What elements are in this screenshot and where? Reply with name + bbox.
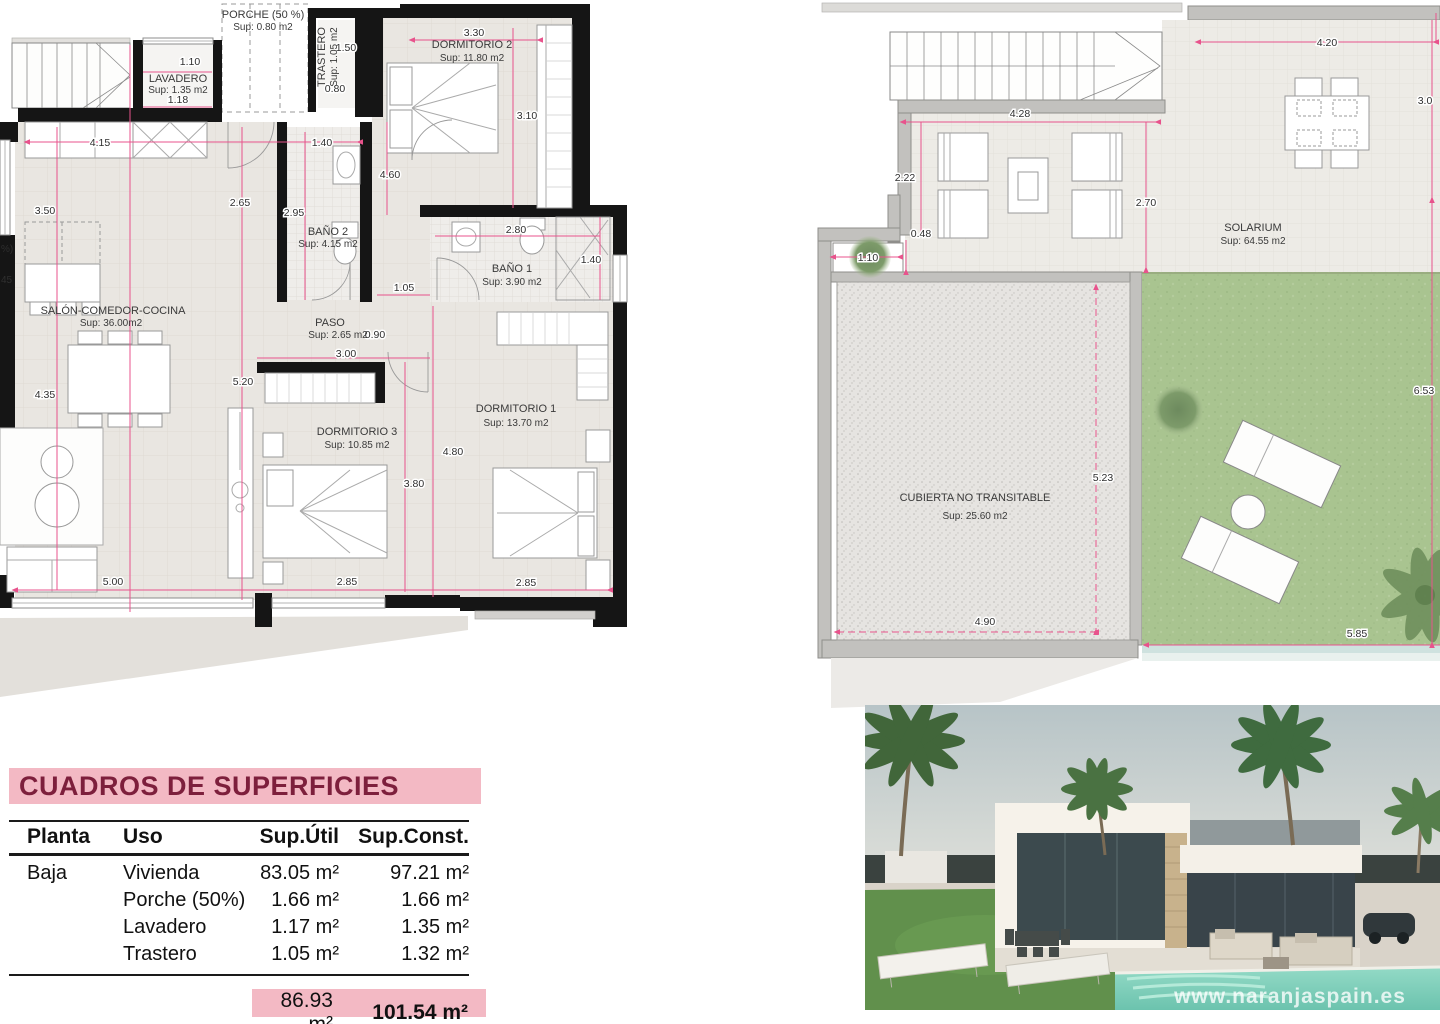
- col-header-util: Sup.Útil: [255, 822, 339, 853]
- svg-text:Sup: 4.15 m2: Sup: 4.15 m2: [298, 239, 358, 250]
- floor-plans: 1.10 1.18 1.50 0.80 3.30 3.10 4.15 1.40 …: [0, 0, 1440, 712]
- svg-text:0.48: 0.48: [911, 228, 932, 240]
- cell-planta: [27, 914, 123, 941]
- svg-text:Sup: 64.55 m2: Sup: 64.55 m2: [1220, 236, 1285, 247]
- terrace-edge: [0, 616, 468, 697]
- total-util: 86.93 m²: [252, 989, 339, 1024]
- svg-text:5.20: 5.20: [233, 376, 254, 388]
- svg-text:1.40: 1.40: [312, 137, 333, 149]
- roof-wedge: [831, 658, 1138, 708]
- staircase: [12, 38, 130, 108]
- svg-text:SOLARIUM: SOLARIUM: [1224, 222, 1281, 234]
- ground-floor-plan: 1.10 1.18 1.50 0.80 3.30 3.10 4.15 1.40 …: [0, 4, 627, 697]
- svg-text:45: 45: [1, 275, 13, 286]
- svg-text:3.10: 3.10: [517, 110, 538, 122]
- pool-edge: [1142, 645, 1440, 653]
- bed-dormitorio2: [387, 63, 498, 153]
- svg-text:PORCHE (50 %): PORCHE (50 %): [222, 9, 305, 21]
- svg-text:2.65: 2.65: [230, 197, 251, 209]
- cell-const: 97.21 m²: [339, 860, 469, 887]
- surface-table-totals: 86.93 m² 101.54 m²: [252, 989, 486, 1017]
- svg-text:TRASTERO: TRASTERO: [316, 27, 328, 87]
- solarium-plan: 4.20 4.28 2.22 0.48 1.10 2.70 3.0 5.23 4…: [818, 3, 1440, 708]
- svg-text:4.80: 4.80: [443, 446, 464, 458]
- svg-text:DORMITORIO 1: DORMITORIO 1: [476, 403, 556, 415]
- svg-text:2.95: 2.95: [284, 207, 305, 219]
- svg-text:Sup: 10.85 m2: Sup: 10.85 m2: [324, 440, 389, 451]
- svg-text:Sup: 13.70 m2: Sup: 13.70 m2: [483, 418, 548, 429]
- wardrobe-dormitorio2: [537, 25, 572, 208]
- watermark: www.naranjaspain.es: [1173, 985, 1406, 1008]
- cell-util: 1.17 m²: [255, 914, 339, 941]
- svg-text:6.53: 6.53: [1414, 385, 1435, 397]
- pool-edge-light: [1142, 653, 1440, 661]
- cell-uso: Porche (50%): [123, 887, 255, 914]
- svg-text:Sup: 11.80 m2: Sup: 11.80 m2: [440, 53, 505, 64]
- svg-text:Sup: 3.90 m2: Sup: 3.90 m2: [482, 277, 542, 288]
- svg-text:Sup: 0.80 m2: Sup: 0.80 m2: [233, 22, 293, 33]
- svg-text:1.10: 1.10: [858, 252, 879, 264]
- svg-text:5.23: 5.23: [1093, 472, 1114, 484]
- svg-text:3.50: 3.50: [35, 205, 56, 217]
- col-header-uso: Uso: [123, 822, 255, 853]
- svg-text:1.05: 1.05: [394, 282, 415, 294]
- svg-text:2.70: 2.70: [1136, 197, 1157, 209]
- svg-text:BAÑO 2: BAÑO 2: [308, 225, 348, 238]
- cell-planta: [27, 887, 123, 914]
- surface-table-rows: Baja Vivienda 83.05 m² 97.21 m² Porche (…: [9, 856, 469, 976]
- svg-text:4.20: 4.20: [1317, 37, 1338, 49]
- svg-text:4.60: 4.60: [380, 169, 401, 181]
- svg-text:3.0: 3.0: [1418, 95, 1433, 107]
- cell-planta: Baja: [27, 860, 123, 887]
- svg-text:5.00: 5.00: [103, 576, 124, 588]
- svg-text:4.90: 4.90: [975, 616, 996, 628]
- svg-text:DORMITORIO 3: DORMITORIO 3: [317, 426, 397, 438]
- svg-text:SALÓN-COMEDOR-COCINA: SALÓN-COMEDOR-COCINA: [41, 304, 187, 317]
- side-table: [1231, 495, 1265, 529]
- svg-text:3.00: 3.00: [336, 348, 357, 360]
- svg-text:4.28: 4.28: [1010, 108, 1031, 120]
- cell-planta: [27, 941, 123, 968]
- svg-text:DORMITORIO 2: DORMITORIO 2: [432, 39, 512, 51]
- cell-util: 83.05 m²: [255, 860, 339, 887]
- svg-text:Sup: 36.00m2: Sup: 36.00m2: [80, 318, 143, 329]
- surface-table-title: CUADROS DE SUPERFICIES: [19, 771, 399, 802]
- svg-text:0.90: 0.90: [365, 329, 386, 341]
- svg-text:PASO: PASO: [315, 317, 345, 329]
- cell-uso: Vivienda: [123, 860, 255, 887]
- cell-const: 1.66 m²: [339, 887, 469, 914]
- svg-text:1.40: 1.40: [581, 254, 602, 266]
- grass-area: [1142, 272, 1440, 645]
- surface-table-title-bar: CUADROS DE SUPERFICIES: [9, 768, 481, 804]
- cell-util: 1.05 m²: [255, 941, 339, 968]
- surface-table: CUADROS DE SUPERFICIES Planta Uso Sup.Út…: [9, 768, 481, 1017]
- svg-text:2.85: 2.85: [337, 576, 358, 588]
- svg-text:4.15: 4.15: [90, 137, 111, 149]
- cell-util: 1.66 m²: [255, 887, 339, 914]
- col-header-const: Sup.Const.: [339, 822, 469, 853]
- svg-text:%): %): [1, 244, 13, 255]
- svg-text:5.85: 5.85: [1347, 628, 1368, 640]
- wardrobe-dormitorio3: [265, 373, 375, 403]
- neighbor-house: [885, 851, 947, 887]
- col-header-planta: Planta: [27, 822, 123, 853]
- svg-text:Sup: 1.35 m2: Sup: 1.35 m2: [148, 85, 208, 96]
- svg-text:2.80: 2.80: [506, 224, 527, 236]
- svg-text:3.30: 3.30: [464, 27, 485, 39]
- surface-table-header: Planta Uso Sup.Útil Sup.Const.: [9, 820, 469, 856]
- cell-uso: Trastero: [123, 941, 255, 968]
- svg-text:Sup: 1.05 m2: Sup: 1.05 m2: [329, 27, 340, 87]
- svg-text:3.80: 3.80: [404, 478, 425, 490]
- svg-text:1.10: 1.10: [180, 56, 201, 68]
- cell-const: 1.32 m²: [339, 941, 469, 968]
- svg-text:4.35: 4.35: [35, 389, 56, 401]
- dining-table: [68, 331, 170, 427]
- villa-render-photo: www.naranjaspain.es: [865, 705, 1440, 1010]
- svg-text:LAVADERO: LAVADERO: [149, 73, 208, 85]
- svg-text:2.22: 2.22: [895, 172, 916, 184]
- cubierta-area: [837, 282, 1130, 640]
- svg-text:Sup: 2.65 m2: Sup: 2.65 m2: [308, 330, 368, 341]
- plan-sheet: 1.10 1.18 1.50 0.80 3.30 3.10 4.15 1.40 …: [0, 0, 1440, 1024]
- svg-text:BAÑO 1: BAÑO 1: [492, 262, 532, 275]
- svg-text:2.85: 2.85: [516, 577, 537, 589]
- svg-text:Sup: 25.60 m2: Sup: 25.60 m2: [942, 511, 1007, 522]
- svg-text:CUBIERTA NO TRANSITABLE: CUBIERTA NO TRANSITABLE: [900, 492, 1051, 504]
- total-const: 101.54 m²: [339, 1001, 476, 1024]
- cell-const: 1.35 m²: [339, 914, 469, 941]
- cell-uso: Lavadero: [123, 914, 255, 941]
- roof-edge: [822, 3, 1182, 12]
- solarium-staircase: [890, 32, 1162, 100]
